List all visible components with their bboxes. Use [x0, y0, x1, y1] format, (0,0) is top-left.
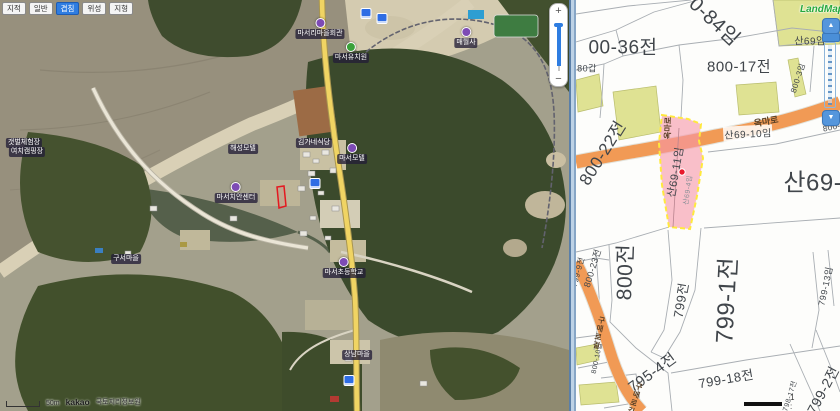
bus-stop-icon[interactable] [361, 8, 372, 19]
kakao-logo: kakao [66, 397, 90, 407]
place-label-text: 마서초등학교 [323, 268, 366, 278]
bus-stop-icon[interactable] [377, 13, 388, 24]
parcel-label: 0-84임 [684, 0, 748, 51]
place-label[interactable]: 구서마을 [111, 254, 141, 264]
map-type-button[interactable]: 일반 [29, 2, 53, 15]
place-label-text: 마서치안센터 [215, 193, 258, 203]
place-label-text: 김가네식당 [296, 138, 332, 148]
place-label[interactable]: 마서치안센터 [215, 182, 258, 203]
place-label-text: 마서리마을회관 [295, 29, 344, 39]
bus-icon[interactable] [377, 13, 388, 24]
poi-marker-icon[interactable] [346, 42, 356, 52]
place-label[interactable]: 마서리마을회관 [295, 18, 344, 39]
place-label[interactable]: 김가네식당 [296, 138, 332, 148]
panel-divider [569, 0, 576, 411]
scale-ruler-bar [744, 402, 782, 406]
bus-icon[interactable] [344, 375, 355, 386]
landmap-logo: LandMap [800, 4, 840, 15]
place-label[interactable]: 마서모텔 [337, 143, 367, 164]
scale-ratio-label: 1 : [790, 393, 794, 411]
map-compare-window: 마서리마을회관마서유치원매월사해성모텔김가네식당마서모텔마서치안센터마서초등학교… [0, 0, 840, 411]
place-label-text: 마서유치원 [333, 53, 369, 63]
zoom-in-button[interactable]: + [550, 5, 567, 17]
zoom-slider-bar [557, 26, 561, 66]
bus-stop-icon[interactable] [310, 178, 321, 189]
zoom-down-button[interactable]: ▼ [822, 110, 840, 126]
bus-stop-icon[interactable] [344, 375, 355, 386]
place-label-text: 매월사 [454, 38, 477, 48]
map-type-toolbar: 지적일반겹침위성지형 [2, 2, 133, 15]
map-type-button[interactable]: 겹침 [56, 2, 80, 15]
bus-icon[interactable] [310, 178, 321, 189]
zoom-level-handle[interactable] [822, 33, 840, 42]
place-label-text: 해성모텔 [228, 144, 258, 154]
zoom-tick-track[interactable] [824, 42, 836, 108]
parcel-label: 800-3임 [788, 62, 808, 95]
place-label[interactable]: 상남마을 [342, 350, 372, 360]
place-label-text: 상남마을 [342, 350, 372, 360]
parcel-label: 산69-13임 [783, 163, 840, 198]
poi-marker-icon[interactable] [231, 182, 241, 192]
parcel-label: 80갑 [577, 62, 597, 75]
poi-layer: 마서리마을회관마서유치원매월사해성모텔김가네식당마서모텔마서치안센터마서초등학교… [0, 0, 569, 411]
scale-bar [6, 401, 40, 407]
map-type-button[interactable]: 지적 [2, 2, 26, 15]
scale-label: 50m [46, 400, 60, 407]
poi-marker-icon[interactable] [339, 257, 349, 267]
parcel-label: 799-2전 [802, 362, 840, 411]
place-label-text: 구서마을 [111, 254, 141, 264]
parcel-label: 00-36전 [588, 33, 657, 60]
place-label-text: 여치캠핑장 [9, 147, 45, 157]
place-label[interactable]: 해성모텔 [228, 144, 258, 154]
place-label[interactable]: 여치캠핑장 [9, 147, 45, 157]
parcel-label: 799-1전 [704, 256, 743, 344]
parcel-label: 799-13임 [815, 265, 836, 307]
place-label[interactable]: 매월사 [454, 27, 477, 48]
place-label-text: 마서모텔 [337, 154, 367, 164]
attribution: 국토지리정보원 [96, 397, 141, 407]
parcel-label: 800전 [608, 243, 640, 300]
parcel-label: 799-18전 [697, 364, 755, 392]
left-zoom-control[interactable]: + − [549, 3, 568, 87]
right-zoom-control[interactable]: ▲ ▼ [822, 18, 839, 124]
map-type-button[interactable]: 지형 [109, 2, 133, 15]
road-name-label: 구매로길 [590, 315, 608, 351]
poi-marker-icon[interactable] [347, 143, 357, 153]
road-name-label: 옥마로 [662, 117, 674, 139]
road-name-label: 옥마로 [753, 112, 780, 129]
poi-marker-icon[interactable] [461, 27, 471, 37]
map-type-button[interactable]: 위성 [82, 2, 106, 15]
place-label[interactable]: 마서초등학교 [323, 257, 366, 278]
zoom-up-button[interactable]: ▲ [822, 18, 840, 34]
parcel-label: 800-22전 [576, 115, 631, 189]
parcel-label: 산69-4임 [681, 175, 695, 206]
bus-icon[interactable] [361, 8, 372, 19]
satellite-map[interactable]: 마서리마을회관마서유치원매월사해성모텔김가네식당마서모텔마서치안센터마서초등학교… [0, 0, 569, 411]
cadastral-map[interactable]: 0-84임00-36전80갑800-17전산69임800-3임800-7임산69… [576, 0, 840, 411]
parcel-label-layer: 0-84임00-36전80갑800-17전산69임800-3임800-7임산69… [576, 0, 840, 411]
place-label[interactable]: 마서유치원 [333, 42, 369, 63]
parcel-label: 799전 [668, 281, 693, 319]
zoom-slider-handle[interactable] [554, 23, 563, 27]
map-footer: 50m kakao 국토지리정보원 [6, 397, 141, 407]
parcel-label: 800-17전 [707, 56, 771, 77]
poi-marker-icon[interactable] [315, 18, 325, 28]
zoom-out-button[interactable]: − [550, 73, 567, 85]
